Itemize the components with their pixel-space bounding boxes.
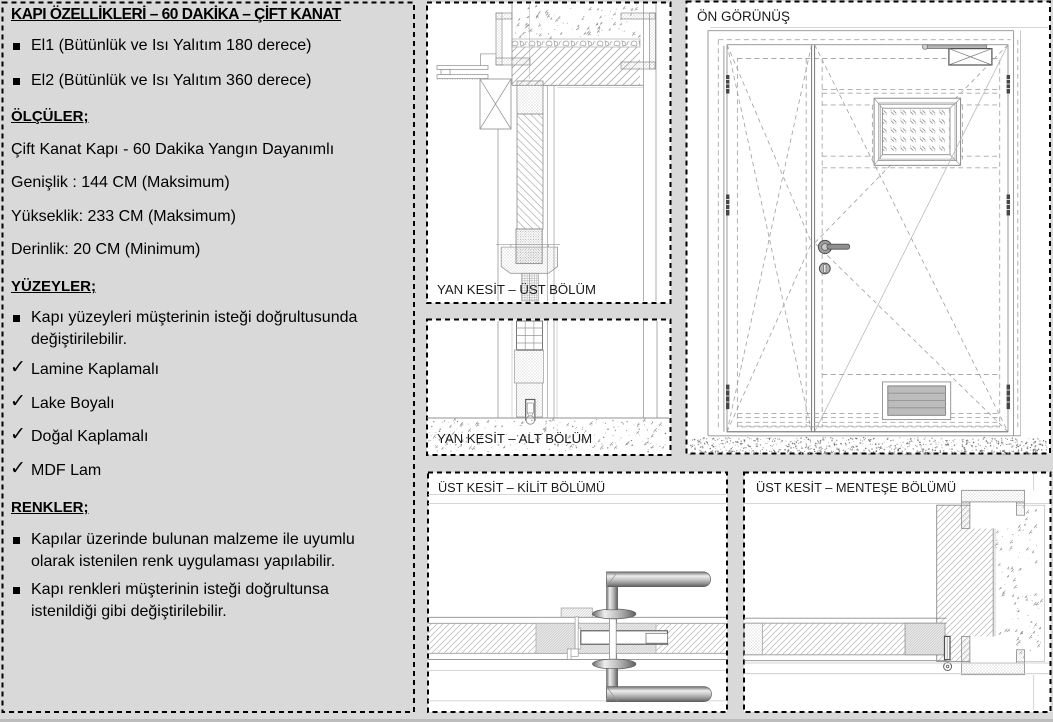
svg-text:ÖN GÖRÜNÜŞ: ÖN GÖRÜNÜŞ xyxy=(697,9,790,24)
svg-text:ÜST KESİT – MENTEŞE BÖLÜMÜ: ÜST KESİT – MENTEŞE BÖLÜMÜ xyxy=(756,480,956,495)
svg-text:YAN KESİT – ÜST BÖLÜM: YAN KESİT – ÜST BÖLÜM xyxy=(437,282,596,297)
svg-text:YAN KESİT – ALT BÖLÜM: YAN KESİT – ALT BÖLÜM xyxy=(437,431,592,446)
svg-text:ÜST KESİT – KİLİT BÖLÜMÜ: ÜST KESİT – KİLİT BÖLÜMÜ xyxy=(438,481,605,495)
